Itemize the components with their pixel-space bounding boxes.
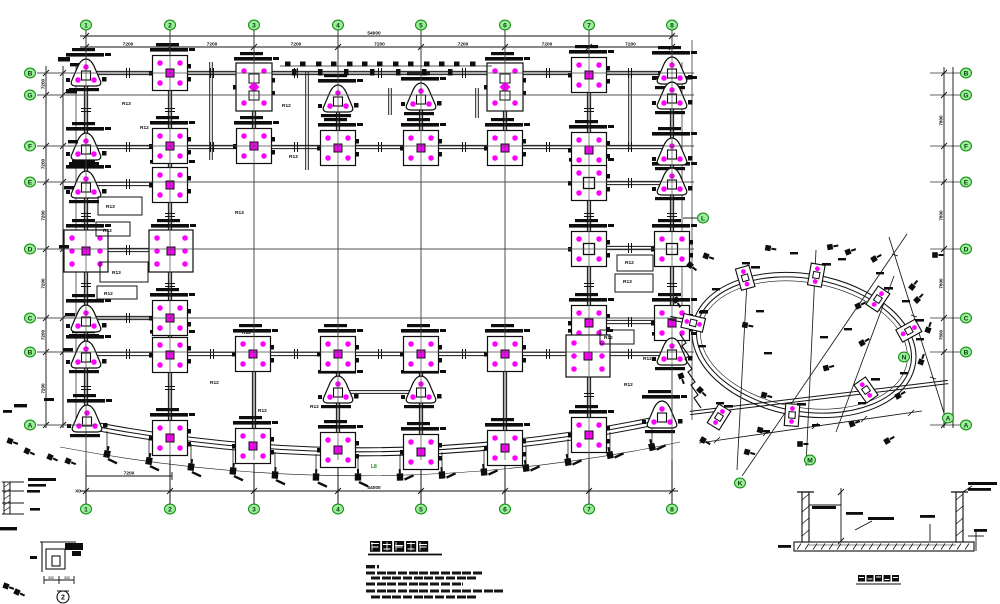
svg-text:7200: 7200	[625, 42, 636, 48]
svg-text:7800: 7800	[939, 210, 944, 221]
svg-text:4: 4	[336, 506, 340, 513]
svg-text:8: 8	[670, 506, 674, 513]
svg-text:A: A	[964, 422, 969, 429]
svg-text:B: B	[28, 349, 33, 356]
svg-text:B: B	[28, 70, 33, 77]
svg-text:C: C	[28, 315, 33, 322]
svg-text:K: K	[738, 480, 743, 487]
svg-text:300: 300	[64, 576, 70, 580]
svg-text:7200: 7200	[123, 42, 134, 48]
svg-text:4: 4	[336, 22, 340, 29]
svg-text:R12: R12	[310, 404, 319, 410]
svg-text:R13: R13	[106, 204, 115, 210]
svg-text:E: E	[964, 179, 969, 186]
svg-text:54000: 54000	[367, 485, 381, 491]
svg-text:R12: R12	[282, 103, 291, 109]
svg-text:A: A	[946, 415, 951, 422]
svg-text:7200: 7200	[41, 78, 46, 89]
svg-text:R13: R13	[623, 279, 632, 285]
svg-text:B: B	[964, 70, 969, 77]
svg-text:G: G	[27, 92, 32, 99]
svg-text:R13: R13	[112, 270, 121, 276]
svg-text:F: F	[28, 143, 32, 150]
svg-text:7200: 7200	[41, 329, 46, 340]
svg-text:7: 7	[587, 22, 591, 29]
svg-text:R13: R13	[289, 154, 298, 160]
svg-text:2: 2	[168, 506, 172, 513]
svg-text:7200: 7200	[41, 278, 46, 289]
svg-text:D: D	[964, 246, 969, 253]
svg-text:7200: 7200	[458, 42, 469, 48]
svg-text:7200: 7200	[41, 383, 46, 394]
svg-text:5: 5	[419, 506, 423, 513]
svg-text:2: 2	[168, 22, 172, 29]
svg-text:300: 300	[48, 576, 54, 580]
svg-text:8: 8	[670, 22, 674, 29]
svg-text:3: 3	[252, 506, 256, 513]
svg-text:7200: 7200	[207, 42, 218, 48]
svg-text:7200: 7200	[124, 471, 135, 477]
svg-text:7200: 7200	[41, 158, 46, 169]
svg-text:6: 6	[503, 22, 507, 29]
svg-text:L: L	[701, 215, 705, 222]
svg-text:R12: R12	[210, 380, 219, 386]
svg-text:R13: R13	[235, 210, 244, 216]
svg-text:R12: R12	[103, 228, 112, 234]
svg-text:3: 3	[252, 22, 256, 29]
svg-text:7200: 7200	[291, 42, 302, 48]
svg-text:G: G	[963, 92, 968, 99]
svg-text:R12: R12	[242, 330, 251, 336]
svg-text:2: 2	[61, 595, 65, 602]
svg-text:R12: R12	[604, 335, 613, 341]
svg-text:R12: R12	[643, 356, 652, 362]
svg-text:5: 5	[419, 22, 423, 29]
svg-text:L8: L8	[371, 464, 377, 470]
svg-text:F: F	[964, 143, 968, 150]
svg-text:7800: 7800	[939, 278, 944, 289]
svg-text:C: C	[964, 315, 969, 322]
svg-text:N: N	[902, 354, 907, 361]
svg-text:6: 6	[503, 506, 507, 513]
svg-text:X0: X0	[75, 489, 81, 495]
svg-text:1: 1	[84, 22, 88, 29]
svg-text:7800: 7800	[939, 115, 944, 126]
svg-text:R12: R12	[624, 382, 633, 388]
svg-text:R12: R12	[258, 408, 267, 414]
svg-text:7200: 7200	[542, 42, 553, 48]
svg-text:A: A	[28, 422, 33, 429]
svg-text:E: E	[28, 179, 33, 186]
svg-text:M: M	[807, 457, 813, 464]
svg-text:7200: 7200	[41, 210, 46, 221]
svg-text:7: 7	[587, 506, 591, 513]
svg-text:7200: 7200	[374, 42, 385, 48]
svg-text:B: B	[964, 349, 969, 356]
svg-text:R12: R12	[140, 125, 149, 131]
svg-text:D: D	[28, 246, 33, 253]
svg-text:R12: R12	[625, 260, 634, 266]
svg-text:R12: R12	[104, 291, 113, 297]
svg-text:7800: 7800	[939, 329, 944, 340]
svg-text:54000: 54000	[367, 31, 381, 37]
svg-text:1: 1	[84, 506, 88, 513]
svg-text:R13: R13	[122, 101, 131, 107]
